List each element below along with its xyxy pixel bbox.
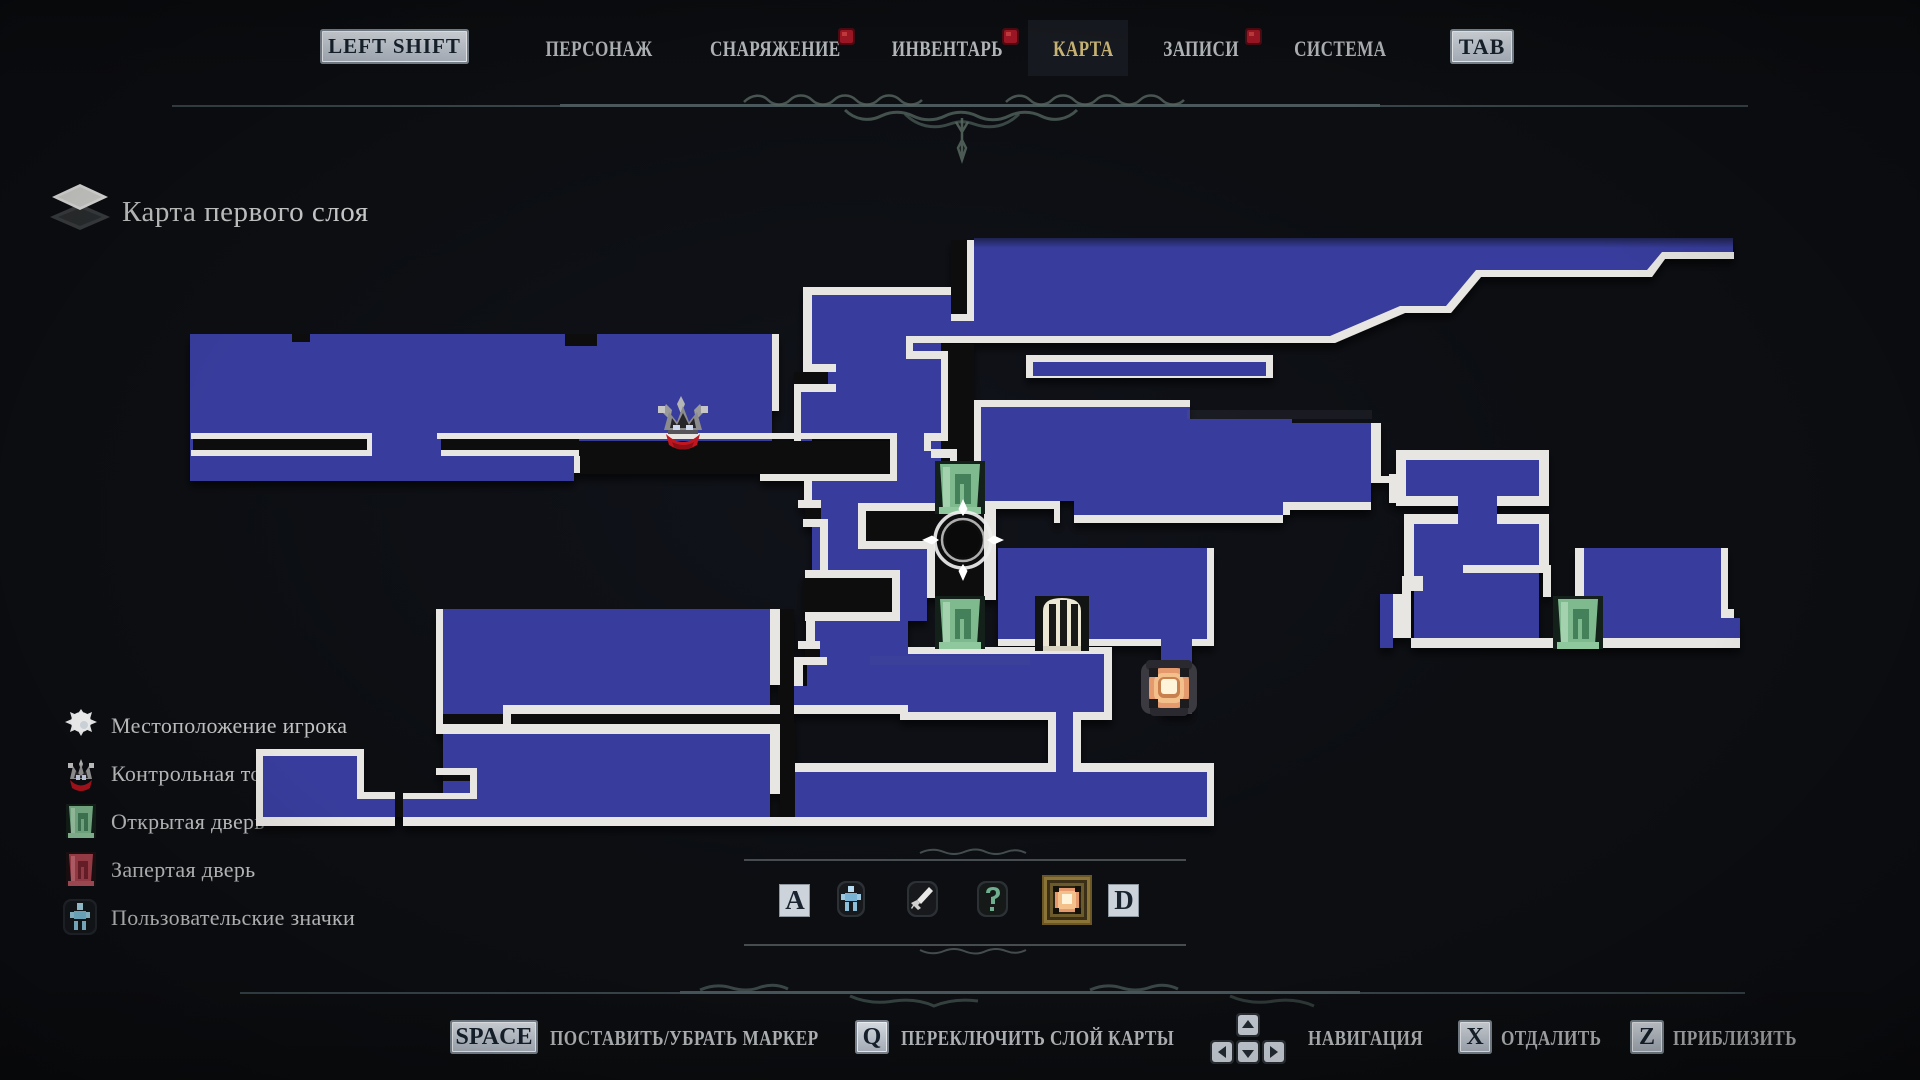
- svg-text:D: D: [1114, 885, 1134, 915]
- svg-text:A: A: [785, 885, 805, 915]
